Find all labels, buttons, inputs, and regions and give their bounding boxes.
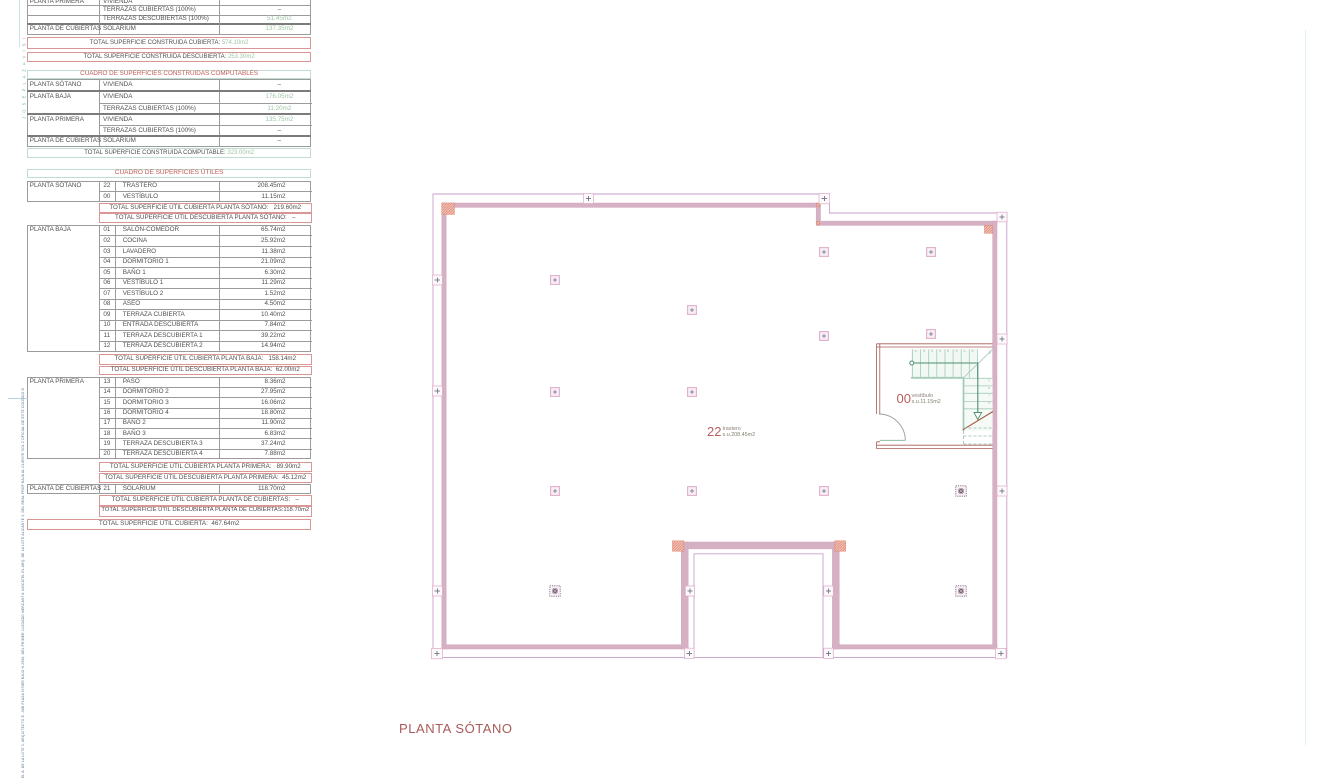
svg-text:11: 11 bbox=[914, 349, 918, 352]
svg-text:J O S E P L A Z A V I S I: J O S E P L A Z A V I S I bbox=[22, 37, 27, 119]
svg-text:18: 18 bbox=[988, 351, 991, 355]
svg-text:EL A. DE LA LOTE 3, ARQUITECTO: EL A. DE LA LOTE 3, ARQUITECTO E. JMB PL… bbox=[21, 387, 25, 778]
svg-text:12: 12 bbox=[922, 349, 926, 352]
svg-text:16: 16 bbox=[954, 349, 958, 352]
svg-text:s.u.208.45m2: s.u.208.45m2 bbox=[723, 432, 756, 438]
svg-text:13: 13 bbox=[930, 349, 934, 352]
svg-text:22: 22 bbox=[707, 424, 721, 439]
svg-text:18: 18 bbox=[971, 349, 975, 352]
svg-text:14: 14 bbox=[938, 349, 942, 352]
svg-text:s.u.11.15m2: s.u.11.15m2 bbox=[912, 399, 941, 405]
svg-text:00: 00 bbox=[897, 391, 911, 406]
svg-text:17: 17 bbox=[962, 349, 966, 352]
svg-text:15: 15 bbox=[946, 349, 950, 352]
